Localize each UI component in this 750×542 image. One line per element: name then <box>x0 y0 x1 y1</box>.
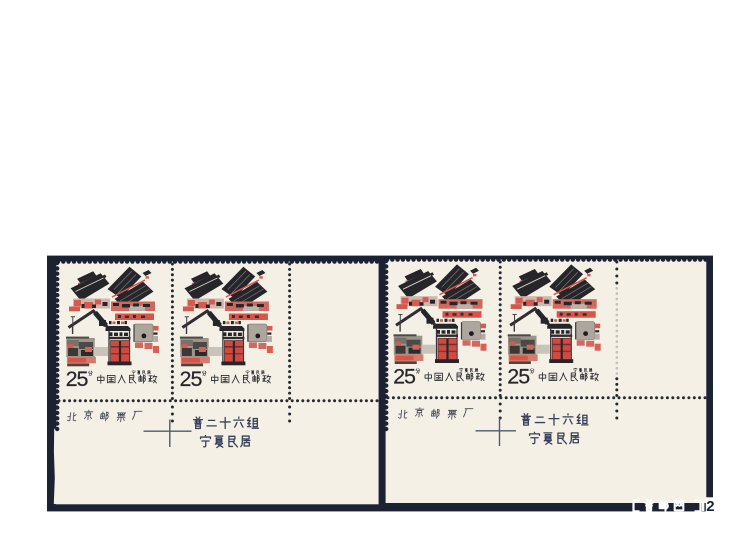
svg-text:2: 2 <box>706 498 714 515</box>
